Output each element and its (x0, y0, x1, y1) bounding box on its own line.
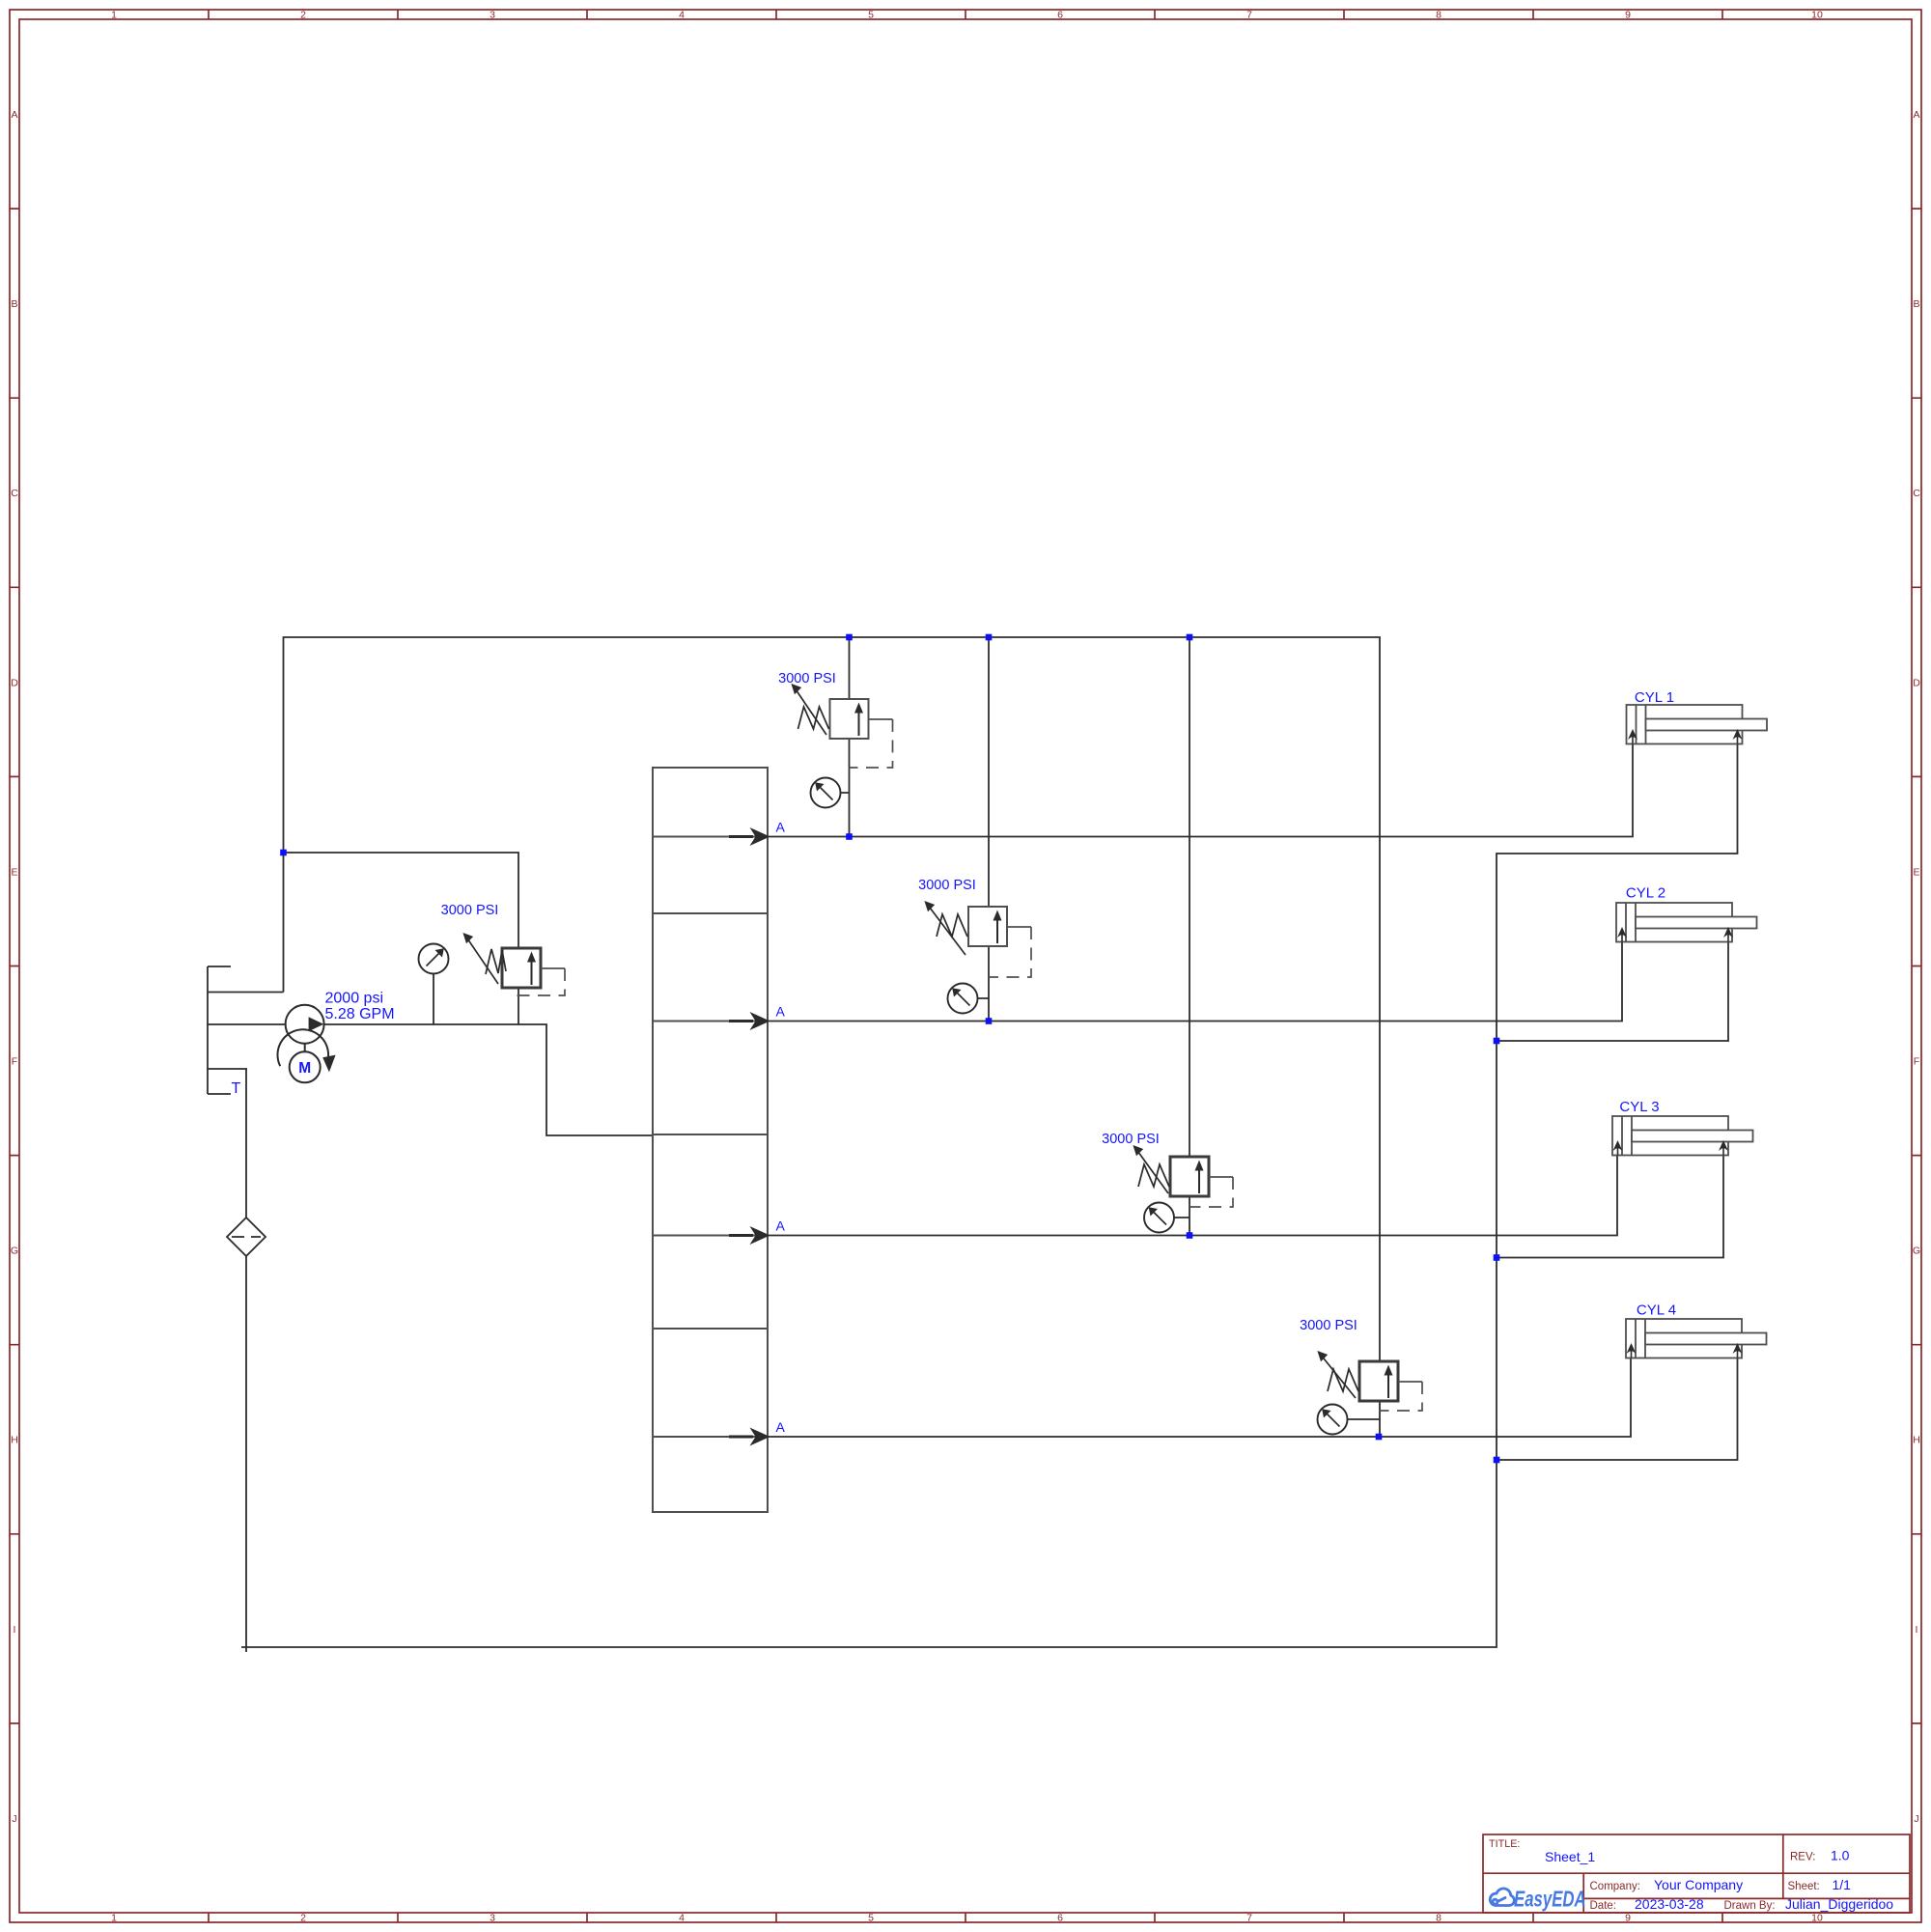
svg-text:C: C (1913, 488, 1920, 499)
svg-text:B: B (1913, 298, 1919, 310)
svg-text:F: F (1914, 1056, 1919, 1068)
svg-text:D: D (1913, 677, 1920, 688)
svg-text:E: E (11, 866, 17, 878)
svg-text:Drawn By:: Drawn By: (1724, 1900, 1776, 1912)
svg-text:Sheet_1: Sheet_1 (1545, 1849, 1595, 1864)
svg-text:Company:: Company: (1590, 1881, 1640, 1892)
svg-text:Julian_Diggeridoo: Julian_Diggeridoo (1785, 1896, 1893, 1912)
svg-text:9: 9 (1625, 1913, 1631, 1924)
svg-text:REV:: REV: (1790, 1852, 1815, 1863)
svg-text:CYL 4: CYL 4 (1637, 1302, 1676, 1319)
svg-text:4: 4 (679, 10, 685, 21)
svg-text:T: T (232, 1080, 241, 1097)
svg-text:A: A (776, 1003, 786, 1019)
svg-text:Date:: Date: (1590, 1900, 1617, 1912)
svg-text:3000 PSI: 3000 PSI (918, 878, 976, 893)
svg-text:1.0: 1.0 (1831, 1848, 1850, 1863)
svg-text:4: 4 (679, 1913, 685, 1924)
svg-text:I: I (14, 1624, 16, 1636)
svg-text:3: 3 (490, 10, 495, 21)
svg-text:F: F (12, 1056, 17, 1068)
svg-text:B: B (11, 298, 17, 310)
svg-text:5: 5 (868, 1913, 874, 1924)
svg-text:3000 PSI: 3000 PSI (778, 671, 836, 686)
svg-text:D: D (11, 677, 18, 688)
svg-text:J: J (12, 1813, 16, 1825)
svg-text:A: A (1913, 109, 1919, 121)
svg-text:Your Company: Your Company (1654, 1877, 1743, 1892)
svg-text:1/1: 1/1 (1833, 1877, 1852, 1892)
svg-text:CYL 2: CYL 2 (1626, 885, 1665, 902)
svg-text:8: 8 (1436, 10, 1441, 21)
svg-text:3000 PSI: 3000 PSI (1300, 1318, 1357, 1333)
svg-text:10: 10 (1811, 1913, 1823, 1924)
svg-text:A: A (776, 1218, 786, 1233)
svg-text:5: 5 (868, 10, 874, 21)
svg-text:EasyEDA: EasyEDA (1514, 1888, 1586, 1912)
svg-text:2: 2 (300, 10, 306, 21)
svg-text:9: 9 (1625, 10, 1631, 21)
svg-text:A: A (776, 1419, 786, 1435)
svg-text:10: 10 (1811, 10, 1823, 21)
svg-text:1: 1 (111, 10, 117, 21)
svg-text:CYL 3: CYL 3 (1619, 1099, 1659, 1115)
svg-text:TITLE:: TITLE: (1489, 1838, 1520, 1850)
svg-text:H: H (1913, 1435, 1920, 1446)
svg-text:J: J (1914, 1813, 1918, 1825)
svg-text:1: 1 (111, 1913, 117, 1924)
svg-text:3: 3 (490, 1913, 495, 1924)
svg-text:I: I (1916, 1624, 1918, 1636)
svg-text:A: A (11, 109, 17, 121)
svg-text:6: 6 (1057, 10, 1063, 21)
svg-text:Sheet:: Sheet: (1788, 1881, 1820, 1892)
svg-text:G: G (1913, 1246, 1920, 1257)
svg-text:2: 2 (300, 1913, 306, 1924)
svg-text:2000 psi: 2000 psi (325, 991, 384, 1007)
svg-text:6: 6 (1057, 1913, 1063, 1924)
svg-text:3000 PSI: 3000 PSI (441, 903, 499, 918)
svg-text:CYL 1: CYL 1 (1635, 689, 1674, 706)
svg-text:G: G (11, 1246, 18, 1257)
svg-text:5.28 GPM: 5.28 GPM (325, 1006, 395, 1022)
svg-text:M: M (298, 1060, 311, 1077)
svg-text:H: H (11, 1435, 18, 1446)
svg-text:A: A (776, 819, 786, 834)
svg-text:8: 8 (1436, 1913, 1441, 1924)
svg-text:7: 7 (1246, 10, 1252, 21)
svg-text:2023-03-28: 2023-03-28 (1635, 1896, 1704, 1912)
svg-text:C: C (11, 488, 18, 499)
svg-text:3000 PSI: 3000 PSI (1102, 1132, 1160, 1147)
svg-text:7: 7 (1246, 1913, 1252, 1924)
svg-text:E: E (1913, 866, 1919, 878)
